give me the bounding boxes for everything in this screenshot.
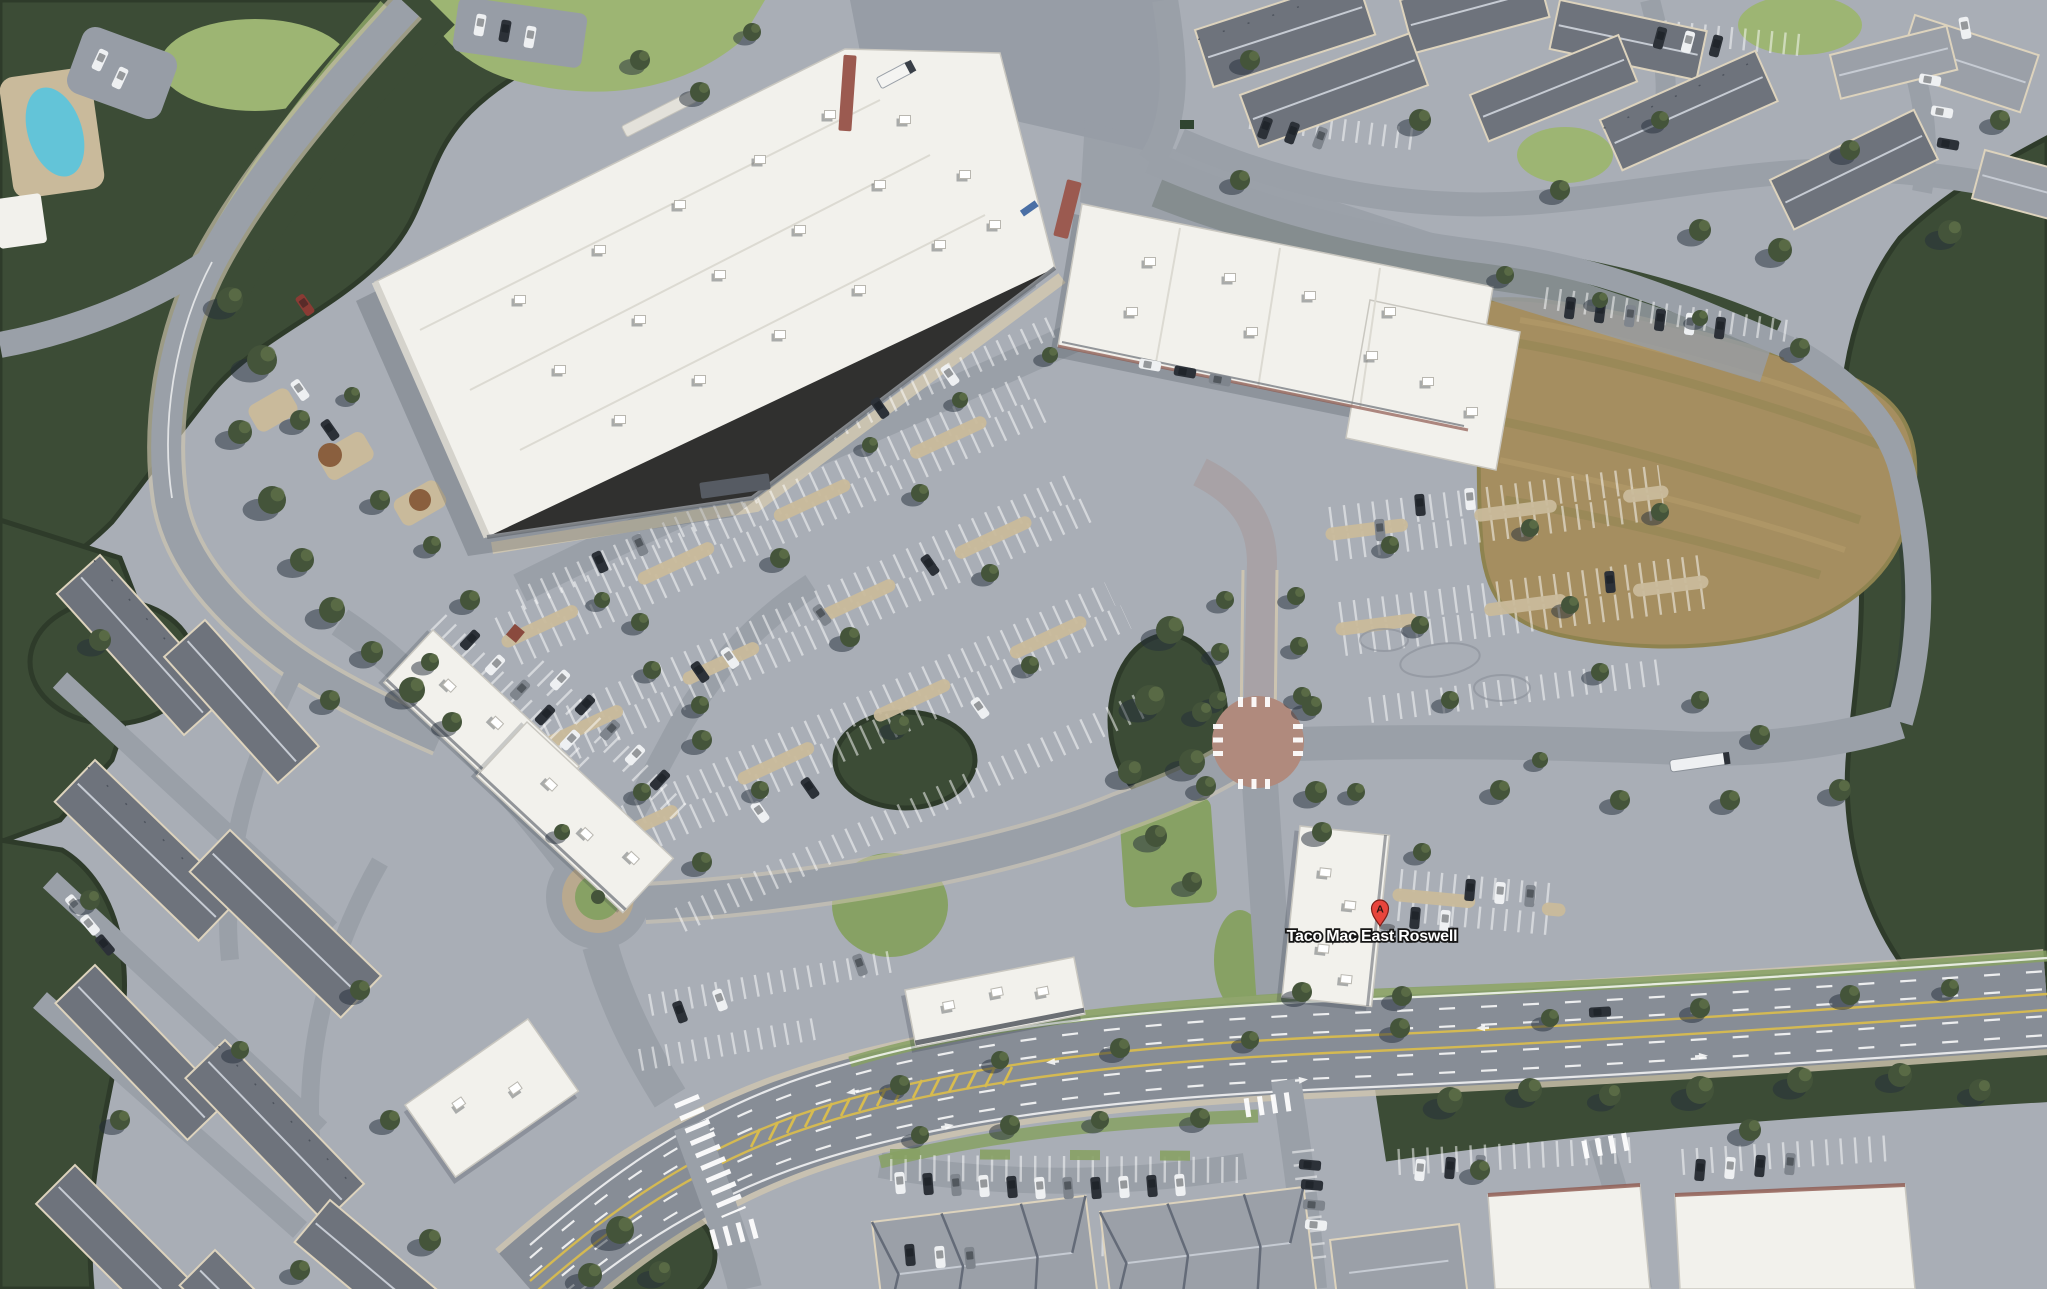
- southeast-commercial-roofs: [1488, 1185, 1915, 1289]
- map-canvas[interactable]: A Taco Mac East Roswell: [0, 0, 2047, 1289]
- place-label: Taco Mac East Roswell: [1287, 928, 1458, 945]
- taco-mac-building-roof: [1277, 825, 1390, 1011]
- brick-intersection: [1212, 696, 1304, 788]
- pin-letter: A: [1376, 903, 1384, 915]
- satellite-map-view[interactable]: A Taco Mac East Roswell: [0, 0, 2047, 1289]
